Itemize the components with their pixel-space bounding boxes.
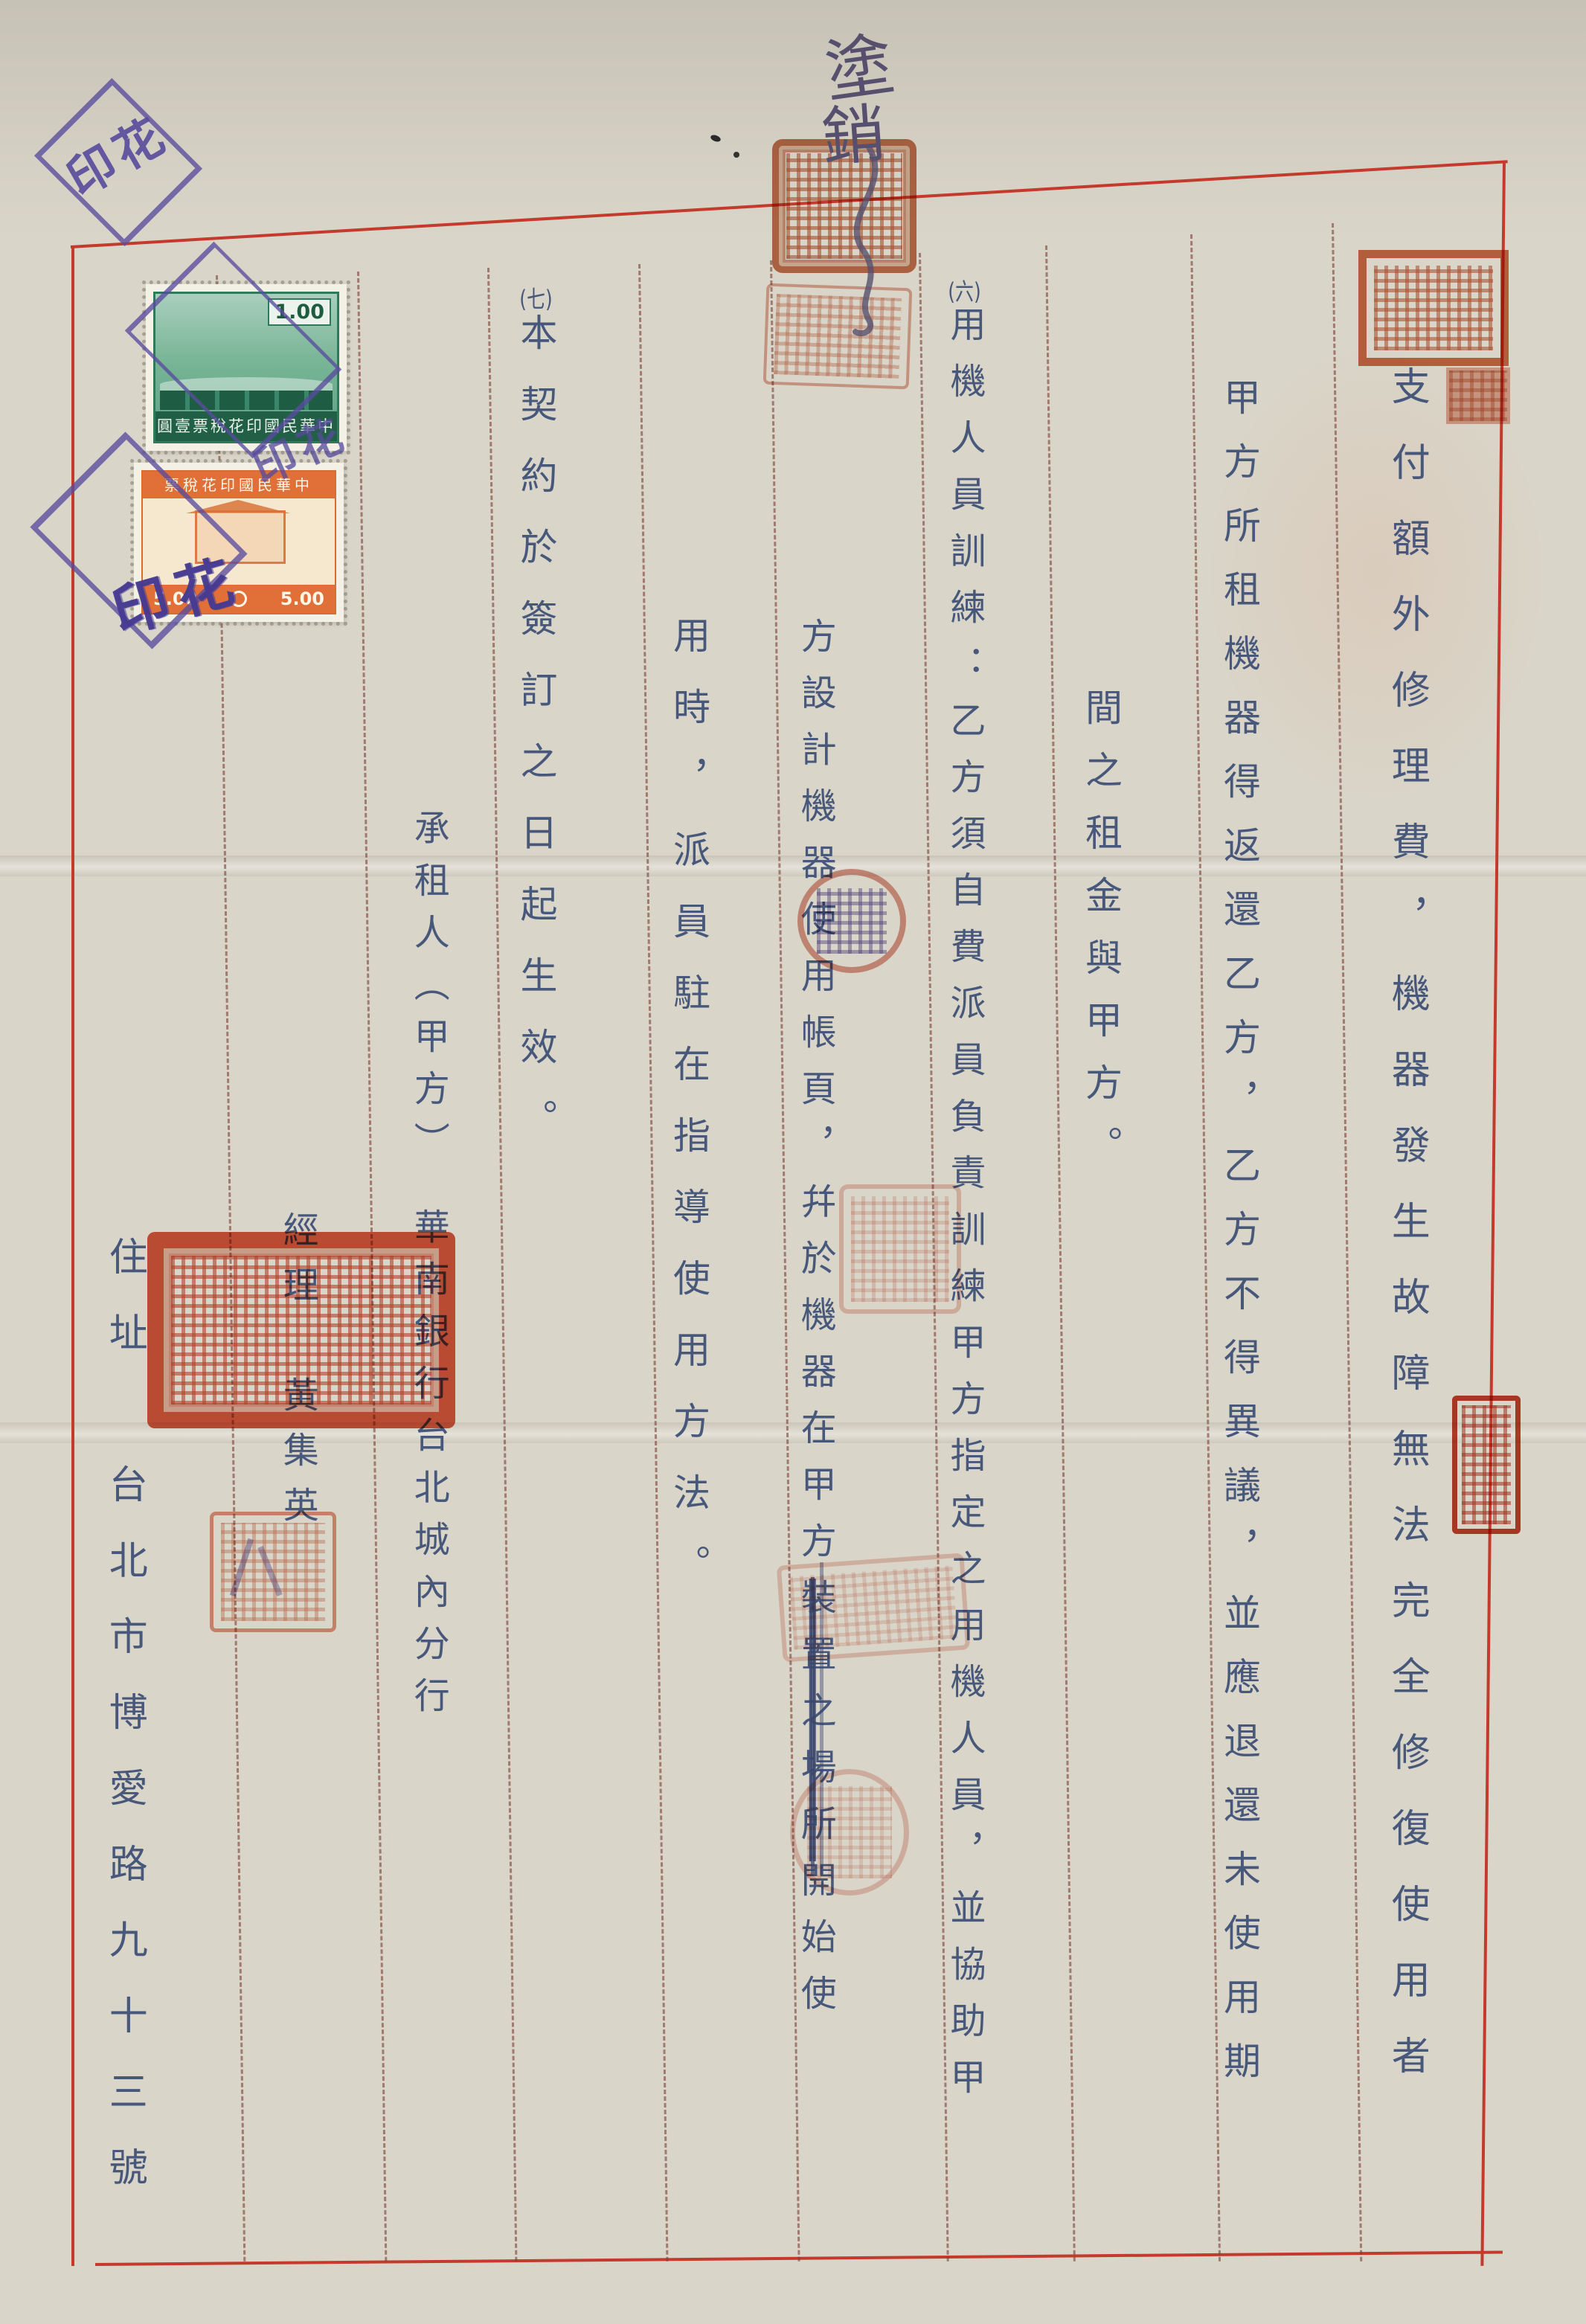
scanned-contract-page: 支付額外修理費，機器發生故障無法完全修復使用者 甲方所租機器得返還乙方，乙方不得… [0, 0, 1586, 2324]
ink-speck [733, 152, 739, 158]
handwritten-paraph-stroke [0, 0, 1586, 2324]
